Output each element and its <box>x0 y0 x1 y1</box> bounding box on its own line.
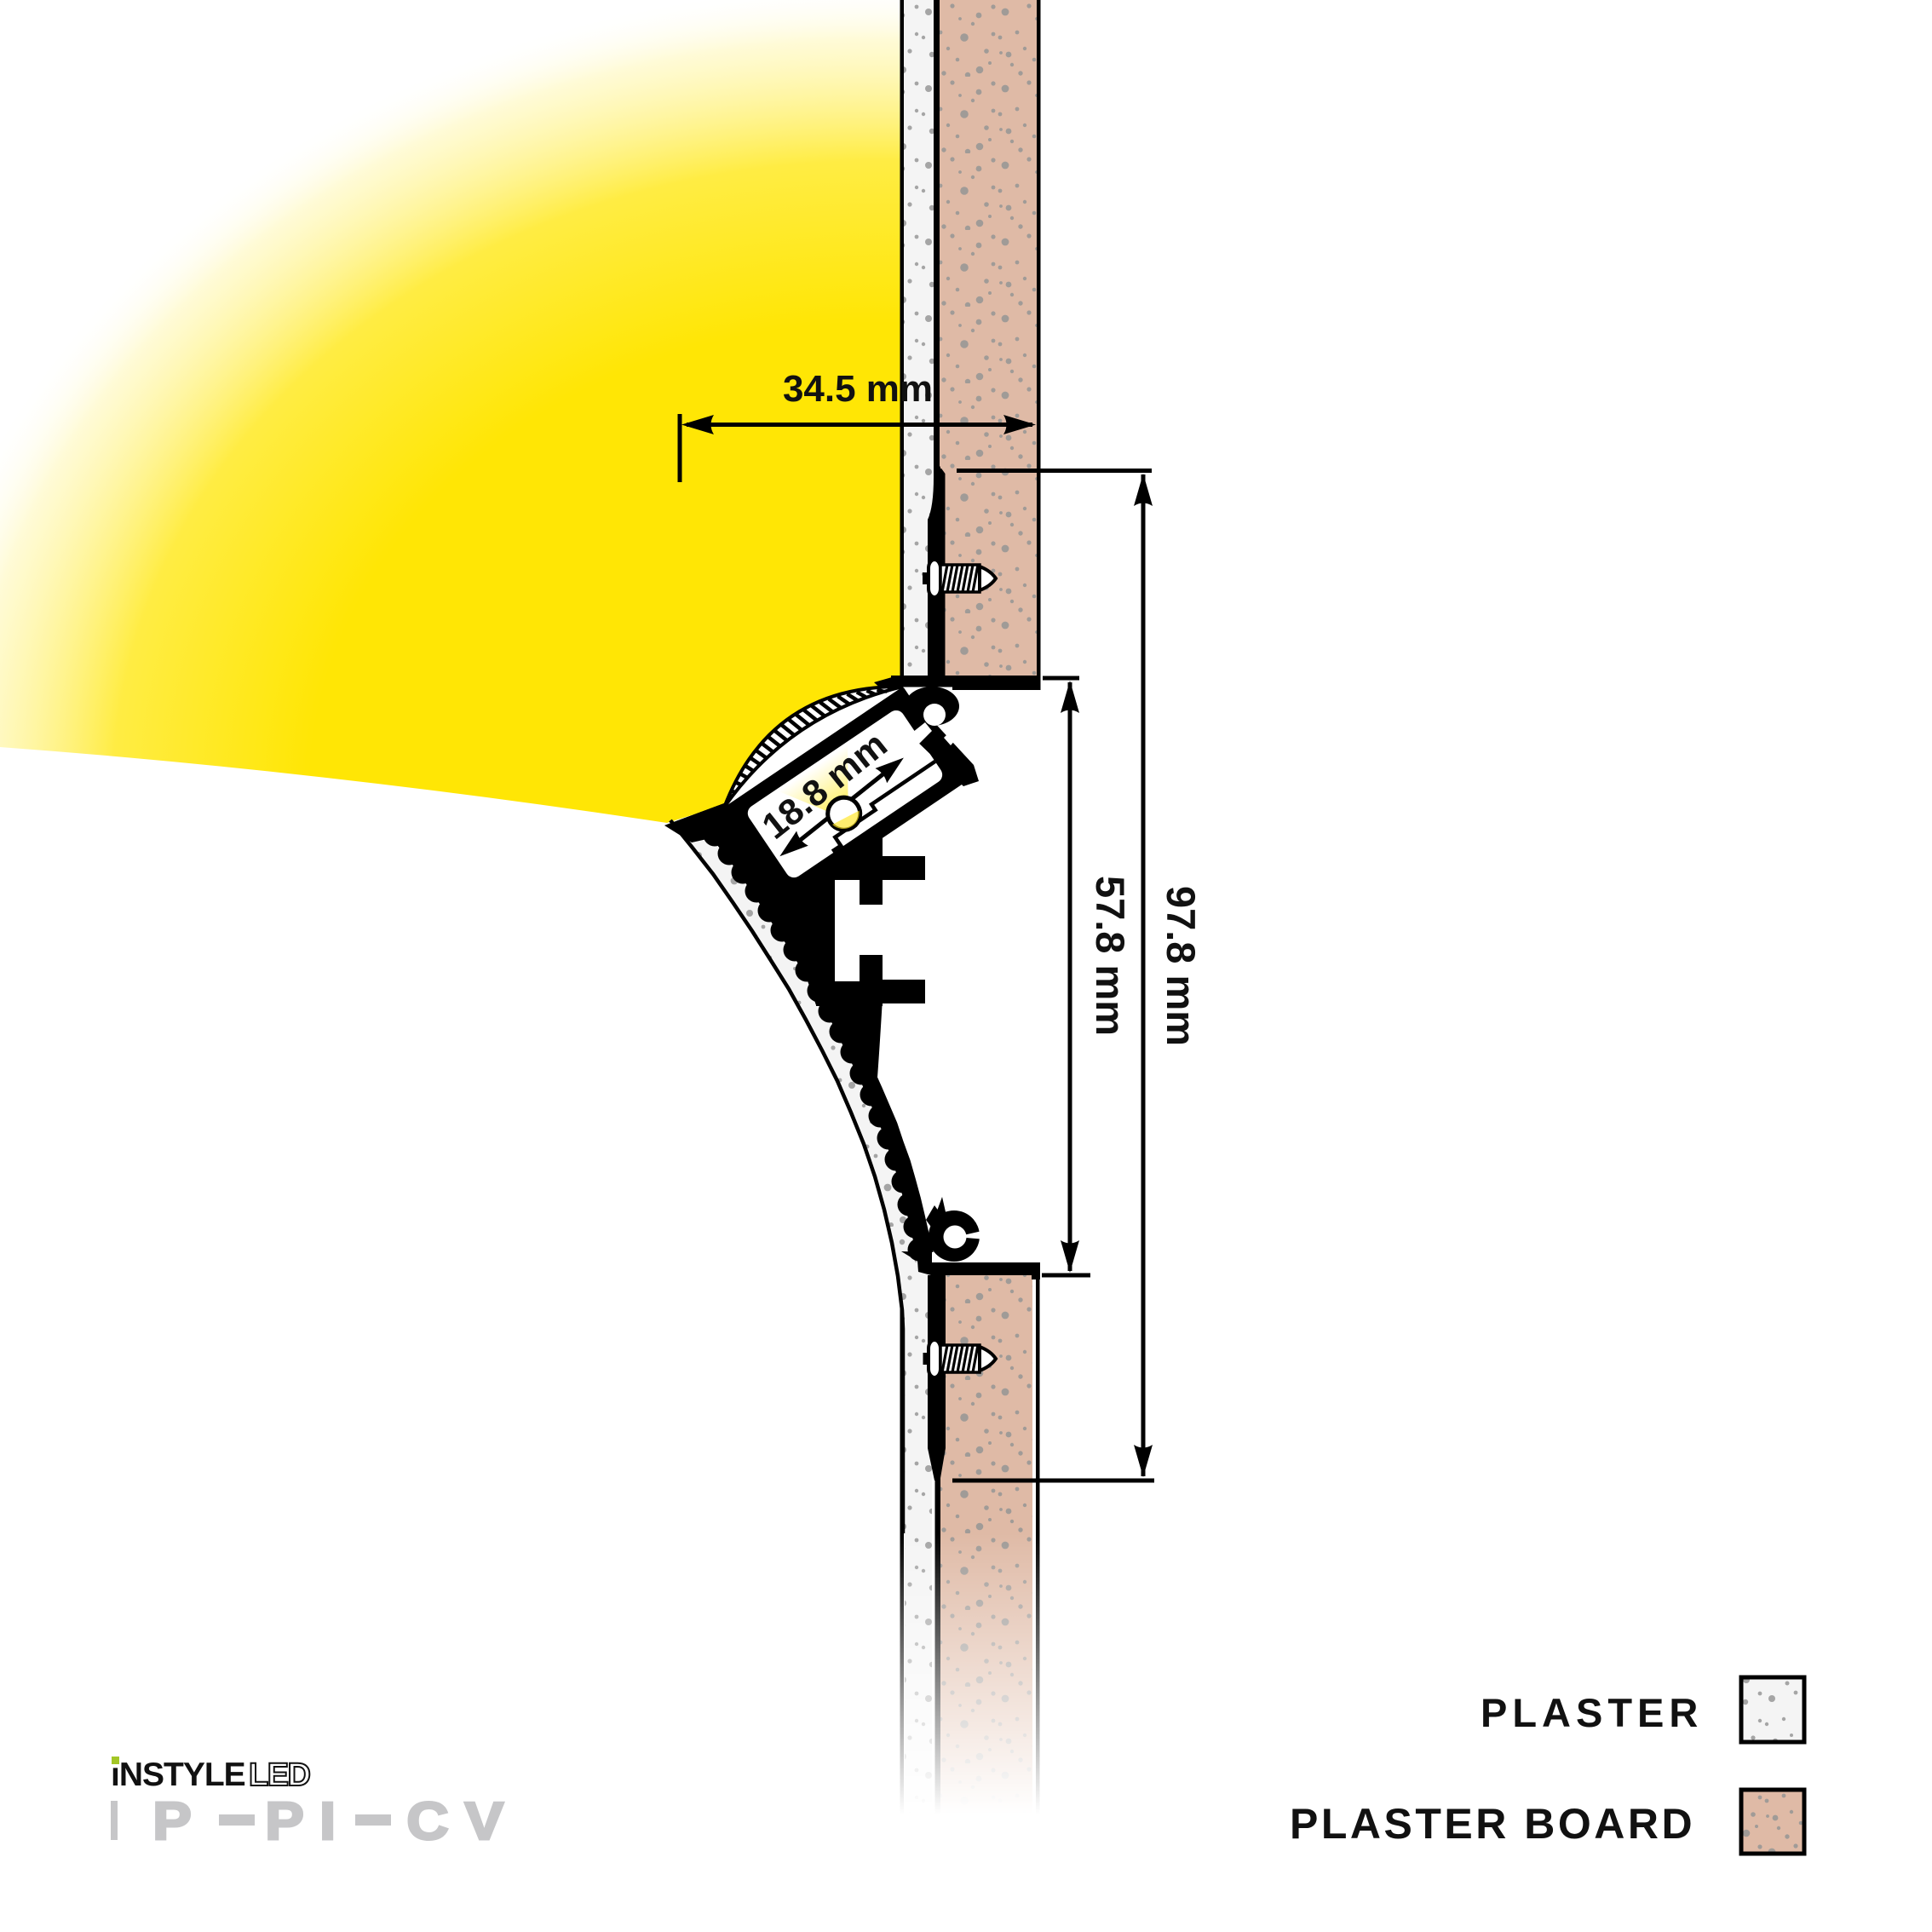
svg-text:C: C <box>406 1791 448 1850</box>
svg-text:P: P <box>152 1791 191 1850</box>
svg-text:V: V <box>465 1791 504 1850</box>
svg-text:PLASTER: PLASTER <box>1481 1690 1703 1735</box>
svg-text:34.5 mm: 34.5 mm <box>783 368 933 410</box>
svg-text:97.8 mm: 97.8 mm <box>1159 886 1204 1046</box>
svg-text:LED: LED <box>249 1757 310 1793</box>
svg-text:57.8 mm: 57.8 mm <box>1088 876 1133 1036</box>
svg-text:ıNSTYLE: ıNSTYLE <box>111 1757 245 1793</box>
svg-text:I: I <box>319 1791 336 1850</box>
svg-text:P: P <box>265 1791 303 1850</box>
svg-text:PLASTER BOARD: PLASTER BOARD <box>1290 1800 1695 1848</box>
